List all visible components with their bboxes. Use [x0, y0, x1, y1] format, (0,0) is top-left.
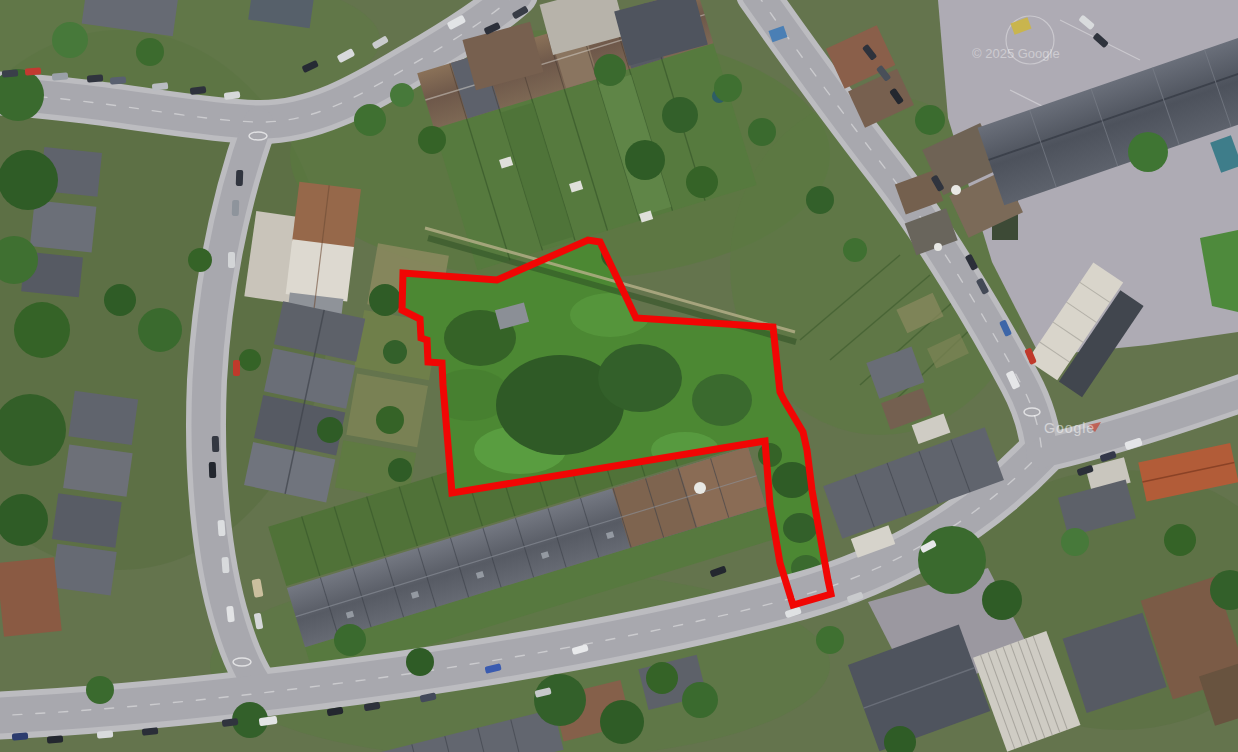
aerial-map: © 2025 Google Google — [0, 0, 1238, 752]
copyright-watermark: © 2025 Google — [972, 46, 1060, 61]
google-watermark: Google — [1044, 420, 1095, 436]
